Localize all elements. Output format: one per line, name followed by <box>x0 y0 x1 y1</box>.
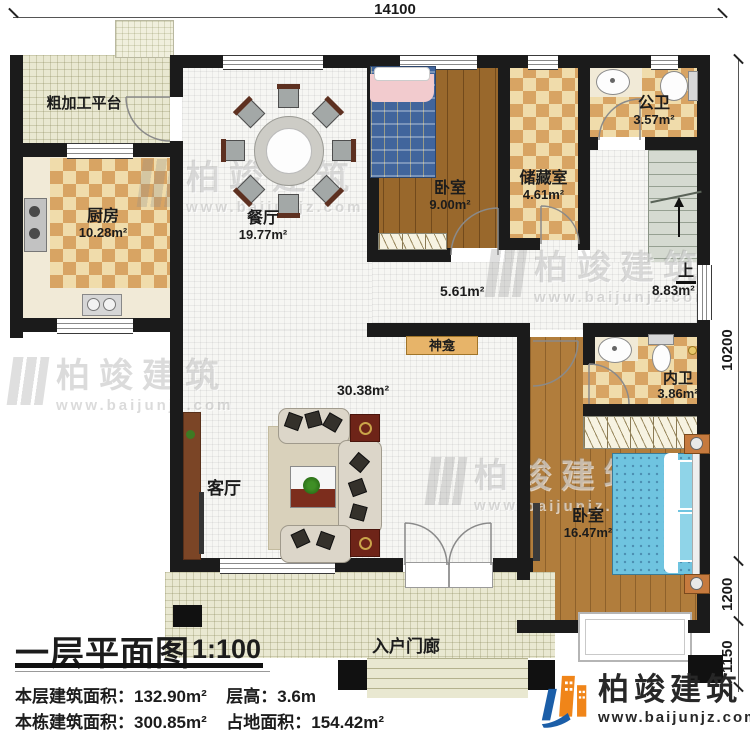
wall <box>170 558 220 572</box>
table-lamp <box>690 577 703 590</box>
wall <box>697 55 710 265</box>
wall <box>517 620 578 633</box>
room-label-bedroom-bottom: 卧室 16.47m² <box>533 508 643 541</box>
dining-chair <box>224 140 245 161</box>
bed-sheet <box>664 453 678 573</box>
bedroom-bottom-wardrobe <box>583 416 699 449</box>
stat-value: 3.6m <box>277 687 316 706</box>
window <box>697 265 712 320</box>
room-name: 厨房 <box>48 208 158 226</box>
wall <box>10 318 57 332</box>
sink-basin <box>87 298 100 311</box>
window <box>223 55 323 70</box>
stairs-up-label: 上 <box>676 257 696 284</box>
bay-window-sill <box>585 619 685 655</box>
wall <box>367 323 517 337</box>
dimension-right-porch: 1200 <box>719 568 736 620</box>
dimension-top-width: 14100 <box>355 1 435 18</box>
room-area: 4.61m² <box>501 188 586 203</box>
watermark-logo-icon <box>7 357 50 405</box>
wall <box>498 65 510 250</box>
room-area: 3.57m² <box>618 113 690 128</box>
wall <box>133 318 182 332</box>
room-label-bedroom-top: 卧室 9.00m² <box>405 180 495 213</box>
wall <box>517 323 530 580</box>
window <box>67 143 133 159</box>
porch-column <box>173 605 202 627</box>
porch-steps <box>367 658 528 698</box>
wall <box>170 338 183 572</box>
wall <box>583 404 710 416</box>
room-area: 16.47m² <box>533 526 643 541</box>
room-label-dining: 餐厅 19.77m² <box>218 210 308 243</box>
wall <box>645 137 697 150</box>
shrine-cabinet: 神龛 <box>406 336 478 355</box>
wall <box>493 558 533 572</box>
room-name: 餐厅 <box>218 210 308 228</box>
stat-value: 300.85m² <box>134 713 207 732</box>
room-name: 公卫 <box>618 95 690 113</box>
dimension-right-main: 10200 <box>719 300 736 400</box>
wall <box>170 141 183 338</box>
up-text: 上 <box>678 263 694 280</box>
company-logo: 柏竣建筑 www.baijunjz.com <box>540 672 750 728</box>
company-website: www.baijunjz.com <box>598 709 750 726</box>
room-name: 卧室 <box>533 508 643 526</box>
storage-floor <box>510 65 578 240</box>
sheet-scale: 1:100 <box>192 634 261 665</box>
bedroom-top-wardrobe <box>378 233 447 250</box>
company-logo-icon <box>540 672 590 728</box>
stair-hall-area: 8.83m² <box>652 283 695 298</box>
stair-flight <box>648 150 698 262</box>
bed-headboard <box>692 453 700 575</box>
sink-basin <box>103 298 116 311</box>
stat-label: 本栋建筑面积： <box>15 713 134 732</box>
stove-burner <box>29 206 40 217</box>
stat-label: 本层建筑面积： <box>15 687 134 706</box>
wall <box>367 248 451 262</box>
wall <box>170 55 223 68</box>
shrine-label: 神龛 <box>429 338 455 353</box>
living-name: 客厅 <box>207 474 241 499</box>
title-underline-thin <box>15 671 270 672</box>
wall-lamp <box>688 346 697 355</box>
dimension-line-right <box>738 60 739 692</box>
wall <box>133 143 170 157</box>
table-plant <box>303 477 320 494</box>
stats-line-2: 本栋建筑面积：300.85m² 占地面积：154.42m² <box>15 708 384 733</box>
stat-label: 占地面积： <box>226 713 311 732</box>
title-underline <box>15 663 263 668</box>
floor-plan-sheet: 柏竣建筑 www.baijunjz.com 柏竣建筑 www.baijunjz.… <box>0 0 750 743</box>
wall <box>583 323 710 337</box>
side-table-decor <box>359 537 372 550</box>
room-name: 粗加工平台 <box>28 95 140 112</box>
room-name: 卧室 <box>405 180 495 198</box>
dining-chair <box>278 87 299 108</box>
room-area: 9.00m² <box>405 198 495 213</box>
table-lamp <box>690 437 703 450</box>
wall <box>558 55 651 68</box>
stair-arrow-stem <box>678 205 680 237</box>
company-name: 柏竣建筑 <box>598 674 750 705</box>
dining-floor <box>182 65 372 335</box>
room-label-platform: 粗加工平台 <box>28 95 140 112</box>
wall <box>23 143 67 157</box>
room-area: 3.86m² <box>645 387 711 402</box>
window <box>651 55 678 70</box>
room-label-kitchen: 厨房 10.28m² <box>48 208 158 241</box>
living-area: 30.38m² <box>337 382 389 398</box>
window <box>57 318 133 334</box>
corridor-floor <box>372 262 697 330</box>
room-area: 19.77m² <box>218 228 308 243</box>
room-label-storage: 储藏室 4.61m² <box>501 170 586 203</box>
stair-arrow-head <box>674 197 684 207</box>
decor-plant <box>186 430 195 439</box>
entry-door-leaf <box>449 562 493 588</box>
basin-faucet <box>612 346 617 351</box>
porch-label: 入户门廊 <box>372 632 440 657</box>
room-area: 10.28m² <box>48 226 158 241</box>
room-label-inner-bath: 内卫 3.86m² <box>645 370 711 402</box>
stat-value: 154.42m² <box>311 713 384 732</box>
toilet <box>652 344 671 372</box>
window <box>528 55 558 70</box>
stats-line-1: 本层建筑面积：132.90m² 层高：3.6m <box>15 682 316 707</box>
wall <box>688 620 710 633</box>
wall <box>498 238 540 250</box>
corridor-area: 5.61m² <box>440 283 484 299</box>
dining-table-top <box>266 128 312 174</box>
wall <box>583 337 595 365</box>
room-name: 储藏室 <box>501 170 586 188</box>
dining-chair <box>332 140 353 161</box>
tv-panel <box>199 492 204 554</box>
stat-value: 132.90m² <box>134 687 207 706</box>
side-table-decor <box>359 422 372 435</box>
wall <box>578 137 598 150</box>
porch-column <box>338 660 367 690</box>
stove-burner <box>29 228 40 239</box>
wall <box>10 55 23 338</box>
platform-step-extension <box>115 20 174 58</box>
stat-label: 层高： <box>226 687 277 706</box>
entry-door-leaf <box>405 562 449 588</box>
bay-window <box>578 612 692 662</box>
room-label-public-bath: 公卫 3.57m² <box>618 95 690 128</box>
bed-pillow <box>374 67 430 81</box>
room-name: 内卫 <box>645 370 711 387</box>
basin-faucet <box>610 78 615 83</box>
